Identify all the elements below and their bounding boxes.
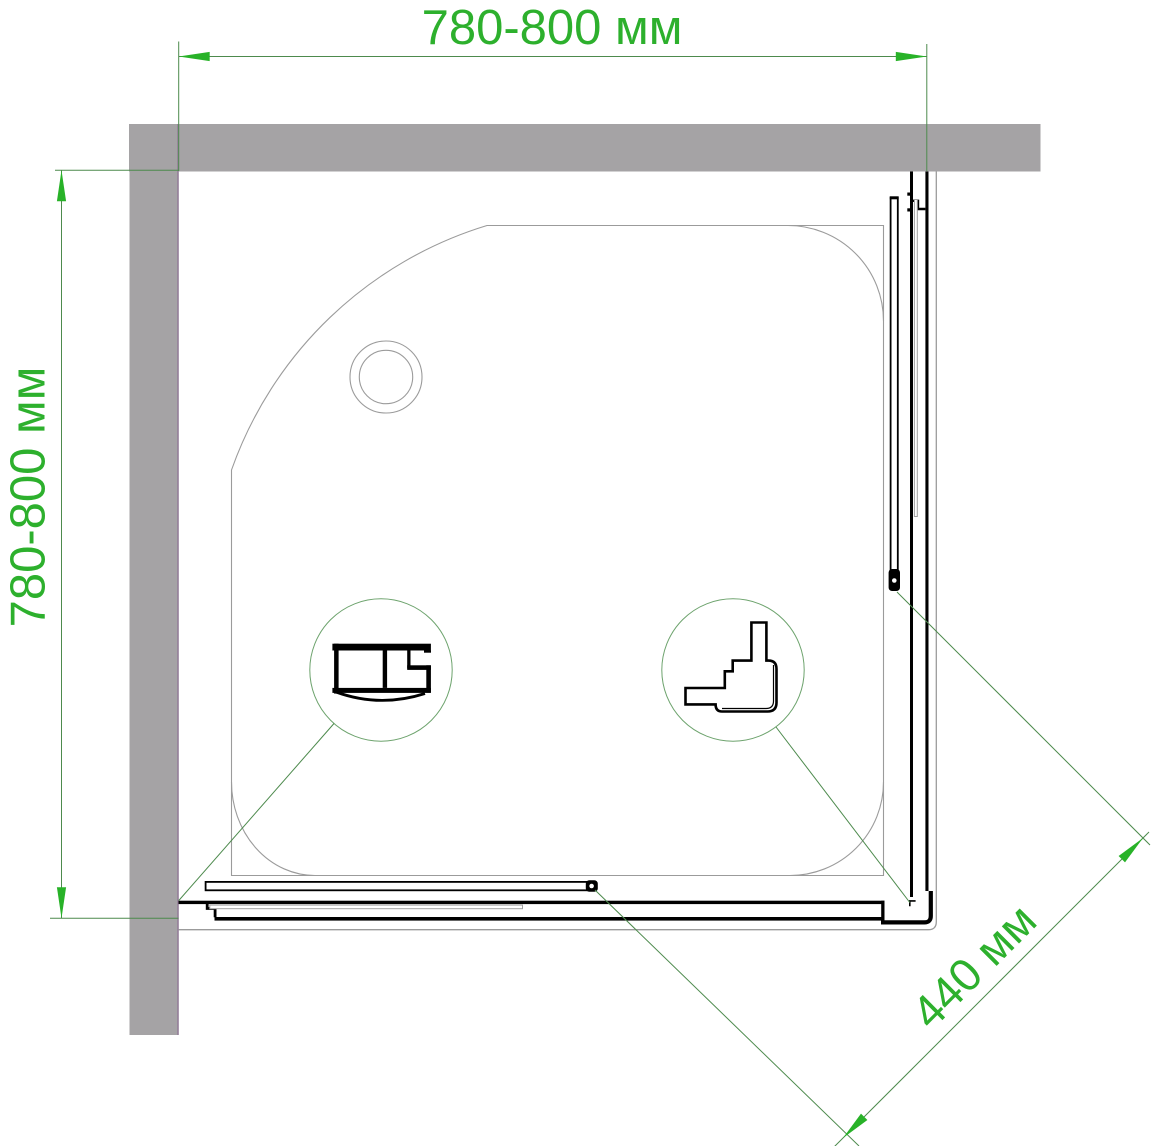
svg-text:780-800 мм: 780-800 мм — [1, 367, 55, 628]
svg-text:780-800 мм: 780-800 мм — [422, 1, 683, 55]
